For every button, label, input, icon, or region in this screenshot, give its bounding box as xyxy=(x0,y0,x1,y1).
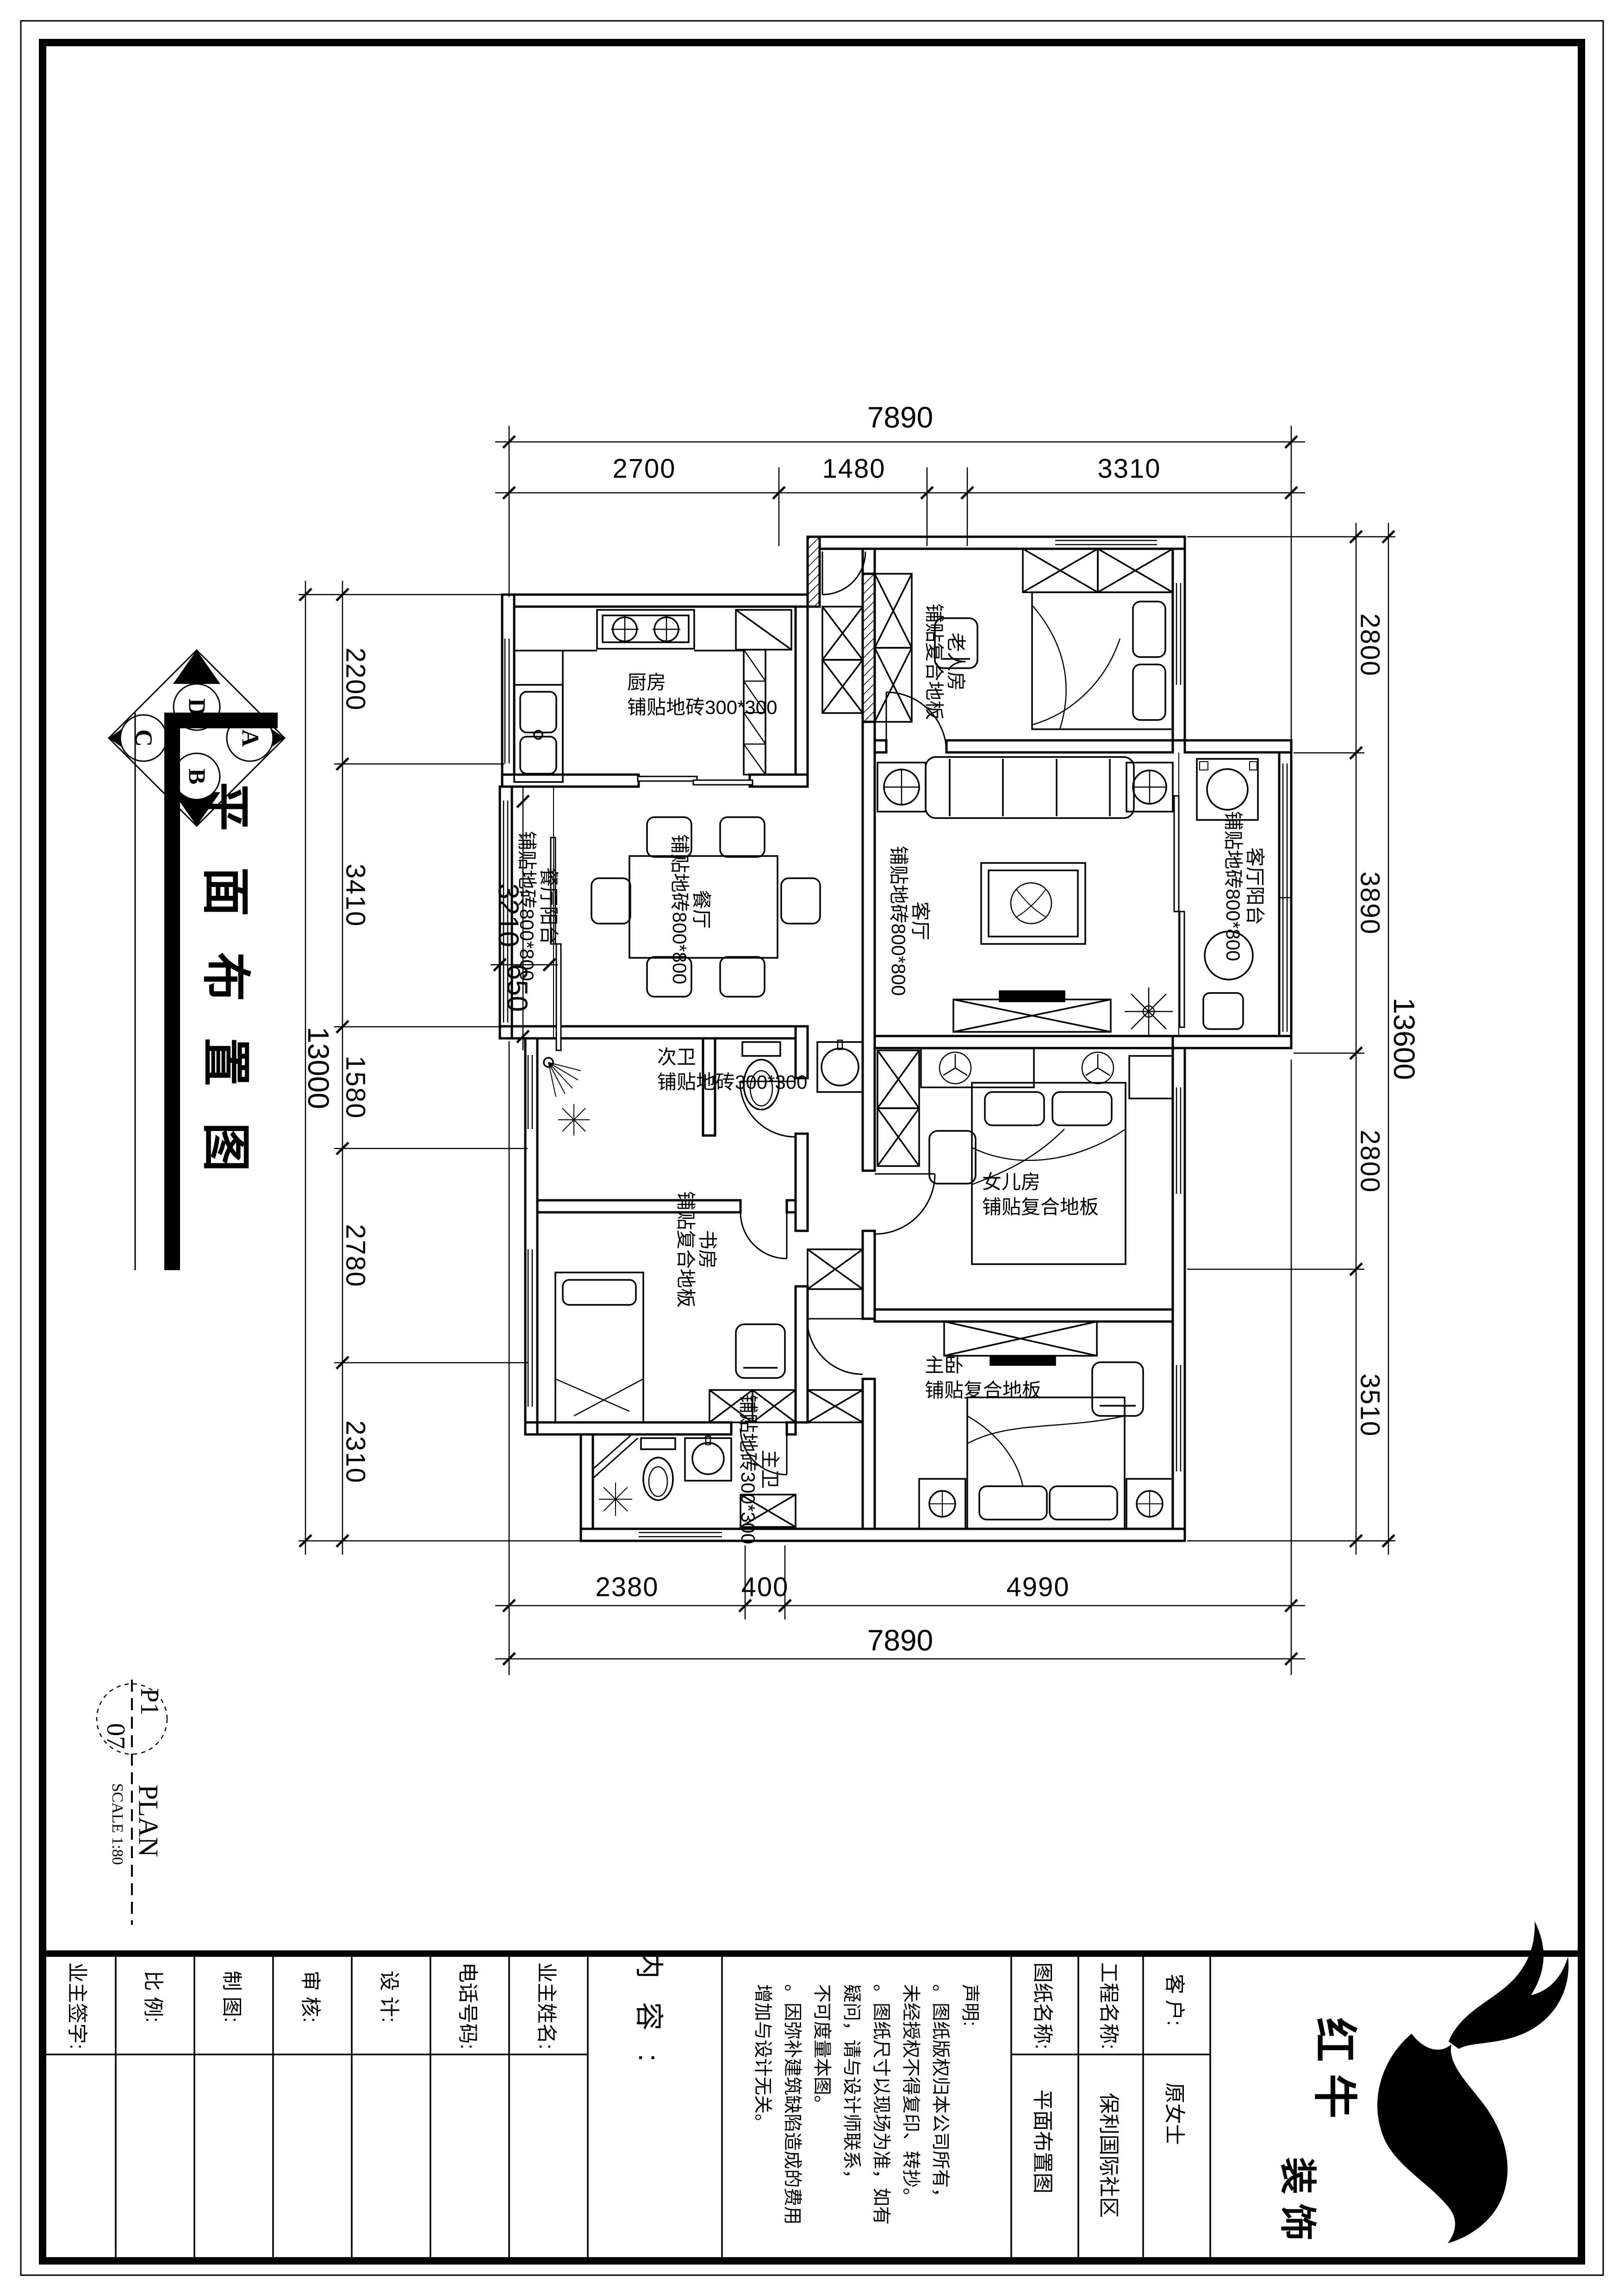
dim-bottom-3: 4990 xyxy=(1006,1572,1070,1603)
dim-left-total: 13000 xyxy=(301,1027,336,1109)
room-label-elder-room: 老人房铺贴复合地板 xyxy=(923,603,967,720)
client-value: 原女士 xyxy=(1162,2082,1192,2145)
room-label-master-bath: 主卫铺贴地砖300*300 xyxy=(737,1394,781,1545)
dim-top-3: 3310 xyxy=(1097,453,1161,484)
dim-right-3: 2800 xyxy=(1355,1129,1386,1193)
client-label: 客 户: xyxy=(1162,1974,1191,2026)
dim-bottom-total: 7890 xyxy=(867,1623,933,1657)
dim-top-2: 1480 xyxy=(822,453,885,484)
dim-left-2: 3410 xyxy=(340,863,371,927)
project-name-value: 保利国际社区 xyxy=(1096,2093,1126,2218)
dim-top-1: 2700 xyxy=(612,453,676,484)
room-label-study: 书房铺贴复合地板 xyxy=(675,1191,718,1308)
field-designed-by: 设 计: xyxy=(376,1971,406,2023)
brand-name-sub: 装饰 xyxy=(1274,2157,1327,2250)
dim-left-4: 2780 xyxy=(340,1224,371,1287)
dim-right-total: 13600 xyxy=(1387,998,1421,1080)
dim-right-1: 2800 xyxy=(1355,613,1386,676)
room-label-second-bath: 次卫铺贴地砖300*300 xyxy=(657,1045,808,1095)
dim-left-5: 2310 xyxy=(340,1420,371,1483)
drawing-scale: SCALE 1:80 xyxy=(108,1783,126,1865)
room-label-living-balcony: 客厅阳台铺贴地砖800*800 xyxy=(1222,811,1266,962)
page-title: 平面布置图 xyxy=(194,782,266,1208)
compass-letter-right: A xyxy=(236,729,264,747)
brand-name-main: 红牛 xyxy=(1307,2017,1371,2130)
dim-left-1: 2200 xyxy=(340,647,371,711)
declaration-block: 声明: 。图纸版权归本公司所有， 未经授权不得复印、转抄。 。图纸尺寸以现场为准… xyxy=(748,1984,985,2225)
drawing-name-label: 图纸名称: xyxy=(1030,1962,1059,2049)
field-drafted-by: 制 图: xyxy=(219,1971,249,2023)
room-label-master-bedroom: 主卧铺贴复合地板 xyxy=(925,1353,1041,1403)
field-owner-name: 业主姓名: xyxy=(534,1962,563,2049)
compass-letter-left: C xyxy=(130,729,157,747)
brand-bull-logo xyxy=(1377,1921,1568,2243)
room-label-dining-room: 餐厅铺贴地砖800*800 xyxy=(669,834,712,985)
content-label: 内容: xyxy=(631,1950,672,2085)
project-name-label: 工程名称: xyxy=(1096,1962,1126,2049)
dim-bottom-1: 2380 xyxy=(595,1572,659,1603)
field-phone-number: 电话号码: xyxy=(455,1962,485,2049)
compass-letter-bottom: B xyxy=(183,769,211,785)
room-label-living-room: 客厅铺贴地砖800*800 xyxy=(888,846,931,996)
drawing-code-bottom: 07 xyxy=(101,1723,131,1749)
field-owner-signature: 业主签字: xyxy=(64,1962,94,2049)
compass-letter-top: D xyxy=(183,698,211,716)
room-label-daughter-room: 女儿房铺贴复合地板 xyxy=(982,1170,1099,1220)
dim-bottom-2: 400 xyxy=(741,1572,789,1603)
drawing-code-top: P1 xyxy=(135,1688,164,1715)
drawing-name-plan: PLAN xyxy=(132,1785,164,1857)
dim-top-total: 7890 xyxy=(867,400,933,434)
field-checked-by: 审 核: xyxy=(298,1971,327,2023)
drawing-name-value: 平面布置图 xyxy=(1030,2089,1060,2193)
dim-right-2: 3890 xyxy=(1355,871,1386,935)
dim-left-3: 1580 xyxy=(340,1055,371,1119)
room-label-dining-balcony: 餐厅阳台铺贴地砖800*800 xyxy=(516,831,560,981)
room-label-kitchen: 厨房铺贴地砖300*300 xyxy=(627,670,778,720)
field-scale: 比 例: xyxy=(140,1971,170,2023)
dim-right-4: 3510 xyxy=(1355,1373,1386,1437)
